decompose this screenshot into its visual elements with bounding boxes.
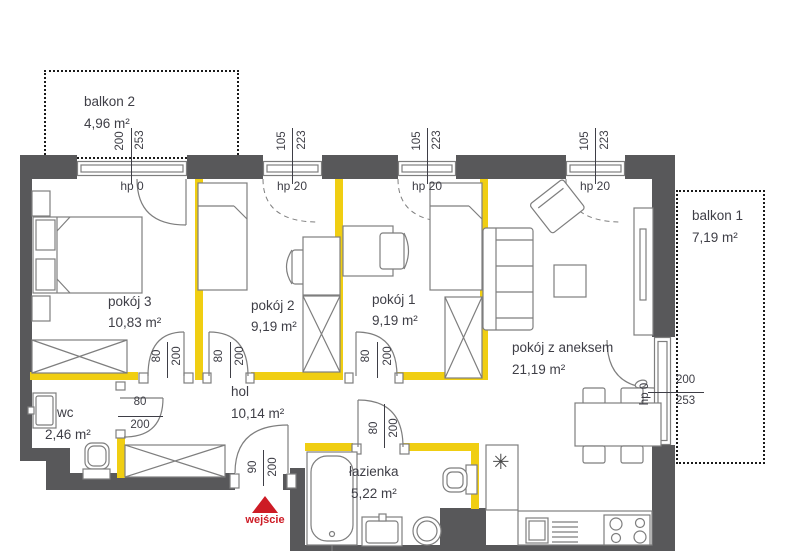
window4-dim-line <box>595 128 596 184</box>
door-entry <box>235 425 288 473</box>
coffee-table <box>554 265 586 297</box>
washing-machine <box>413 517 441 545</box>
stove <box>604 515 650 545</box>
wardrobe <box>125 445 225 477</box>
window1-width: 200 <box>114 126 126 156</box>
door-room2-width: 80 <box>213 341 225 371</box>
door-bathroom-height: 200 <box>388 413 400 443</box>
bathroom-label: łazienka <box>349 464 399 479</box>
window3-dim-line <box>427 128 428 184</box>
window1-dim-line <box>131 128 132 184</box>
door-entry-dim-line <box>263 450 264 486</box>
desk <box>303 237 340 295</box>
room2-label: pokój 2 <box>251 298 295 313</box>
entrance-arrow-icon <box>252 496 278 513</box>
window2-dim-line <box>292 128 293 184</box>
office-chair <box>380 233 409 269</box>
window3-width: 105 <box>411 126 423 156</box>
balcony-1-label: balkon 1 <box>692 208 743 223</box>
wardrobe <box>32 340 127 373</box>
hall-area: 10,14 m² <box>231 406 284 421</box>
balcony2-door-window <box>78 162 187 176</box>
door-entry-height: 200 <box>267 452 279 482</box>
sofa <box>483 228 533 330</box>
room1-area: 9,19 m² <box>372 313 418 328</box>
double-bed <box>33 217 142 293</box>
window2-sill: hp 20 <box>270 179 314 193</box>
window1-height: 253 <box>134 125 146 155</box>
window1-sill: hp 0 <box>110 179 154 193</box>
dining-chair <box>583 446 605 463</box>
door-wc-height: 200 <box>125 419 155 431</box>
window4-width: 105 <box>579 126 591 156</box>
door-room3-width: 80 <box>151 341 163 371</box>
door-wc-dim-line <box>118 416 163 417</box>
door-room1-dim-line <box>377 342 378 378</box>
washbasin <box>28 393 56 428</box>
entrance-label: wejście <box>238 514 292 526</box>
dining-chair <box>583 388 605 404</box>
bathroom-area: 5,22 m² <box>351 486 397 501</box>
floor-plan: balkon 2 4,96 m² balkon 1 7,19 m² pokój … <box>0 0 796 551</box>
balcony-door-dim-line <box>648 392 704 393</box>
room1-label: pokój 1 <box>372 292 416 307</box>
hall-label: hol <box>231 384 249 399</box>
window2-height: 223 <box>296 125 308 155</box>
balcony-door-width: 200 <box>676 374 695 386</box>
toilet <box>443 465 477 494</box>
door-room3-height: 200 <box>171 341 183 371</box>
dining-chair <box>621 446 643 463</box>
window2-width: 105 <box>276 126 288 156</box>
door-wc-width: 80 <box>125 396 155 408</box>
window3-sill: hp 20 <box>405 179 449 193</box>
room3-area: 10,83 m² <box>108 315 161 330</box>
door-room2-height: 200 <box>234 341 246 371</box>
wc-label: wc <box>57 405 74 420</box>
kitchen-symbol: ✳ <box>492 450 510 475</box>
room3-label: pokój 3 <box>108 294 152 309</box>
window3-height: 223 <box>431 125 443 155</box>
balcony-2-label: balkon 2 <box>84 94 135 109</box>
tv-cabinet <box>634 208 653 335</box>
window4-height: 223 <box>599 125 611 155</box>
living-area: 21,19 m² <box>512 362 565 377</box>
balcony-1-area: 7,19 m² <box>692 230 738 245</box>
living-label: pokój z aneksem <box>512 340 613 355</box>
toilet <box>83 443 110 479</box>
door-bathroom-width: 80 <box>368 413 380 443</box>
door-room1-width: 80 <box>360 341 372 371</box>
single-bed <box>430 183 482 290</box>
balcony-door-sill: hp 0 <box>639 379 651 409</box>
window4-sill: hp 20 <box>573 179 617 193</box>
door-entry-width: 90 <box>247 452 259 482</box>
nightstand <box>32 296 50 321</box>
door-room2-dim-line <box>230 342 231 378</box>
room2-area: 9,19 m² <box>251 319 297 334</box>
wc-area: 2,46 m² <box>45 427 91 442</box>
washbasin <box>362 514 402 546</box>
wardrobe <box>445 297 482 378</box>
balcony-door-height: 253 <box>676 395 695 407</box>
single-bed <box>198 183 247 290</box>
nightstand <box>32 191 50 216</box>
door-bathroom-dim-line <box>384 404 385 448</box>
door-room1-height: 200 <box>382 341 394 371</box>
door-room3-dim-line <box>167 342 168 378</box>
wardrobe <box>303 296 340 372</box>
dining-table <box>575 403 661 446</box>
